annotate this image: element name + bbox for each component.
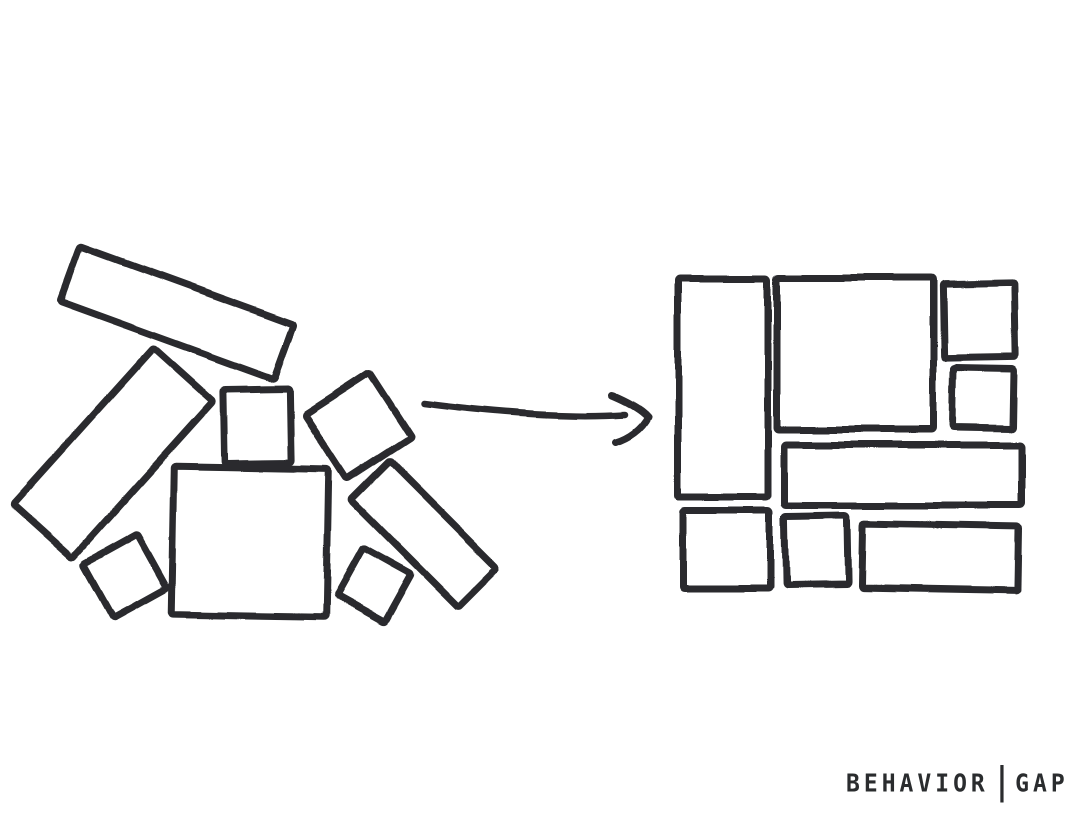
grid-rectangle <box>952 367 1013 428</box>
grid-rectangle <box>861 523 1018 591</box>
transformation-arrow <box>424 395 648 442</box>
pile-rectangle <box>223 388 290 463</box>
pile-rectangle <box>171 467 329 618</box>
arrow-head-icon <box>612 395 648 442</box>
brand-separator: | <box>997 761 1007 801</box>
pile-rectangle <box>351 461 497 607</box>
unorganized-pile <box>13 247 497 623</box>
pile-rectangle <box>13 348 213 558</box>
organized-grid <box>678 278 1022 591</box>
grid-rectangle <box>777 278 933 430</box>
grid-rectangle <box>678 279 768 497</box>
grid-rectangle <box>784 515 848 585</box>
sketch-canvas <box>0 0 1079 822</box>
brand-word-gap: GAP <box>1015 772 1069 797</box>
pile-rectangle <box>337 548 412 623</box>
brand-word-behavior: BEHAVIOR <box>846 772 989 797</box>
grid-rectangle <box>942 282 1015 357</box>
pile-rectangle <box>84 535 167 618</box>
brand-signature: BEHAVIOR | GAP <box>846 766 1069 802</box>
arrow-shaft-icon <box>424 403 625 415</box>
grid-rectangle <box>785 445 1022 505</box>
pile-rectangle <box>60 247 294 379</box>
grid-rectangle <box>683 511 770 588</box>
